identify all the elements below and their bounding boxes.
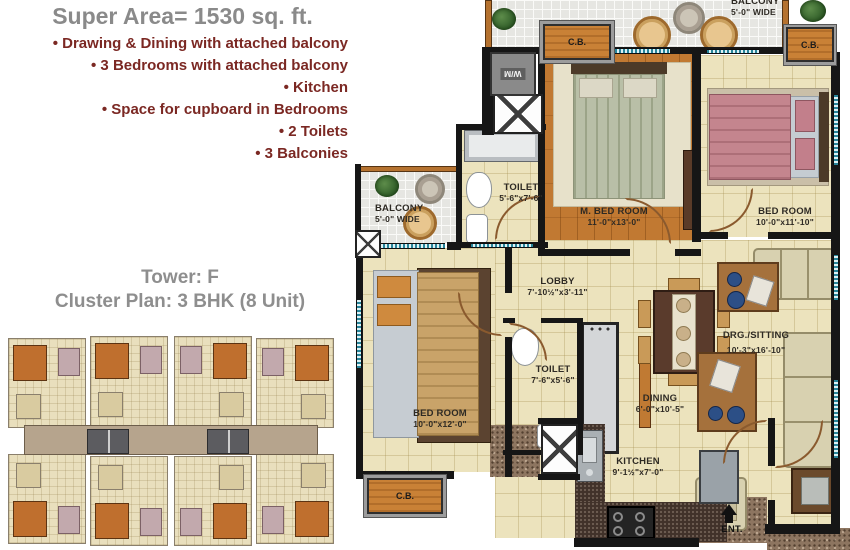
label-bedroom-left: BED ROOM 10'-0"x12'-0" <box>380 408 500 430</box>
wall-segment <box>768 418 775 466</box>
wash-basin <box>466 214 488 244</box>
cluster-unit <box>174 336 252 426</box>
wall-segment <box>538 52 545 255</box>
wall-segment <box>538 249 630 256</box>
feature-item: • 3 Balconies <box>0 143 348 165</box>
floorplan-brochure: Super Area= 1530 sq. ft. • Drawing & Din… <box>0 0 850 550</box>
round-table <box>415 174 445 204</box>
feature-item: • 2 Toilets <box>0 121 348 143</box>
wall-segment <box>692 52 701 242</box>
stove <box>607 506 655 539</box>
feature-list: • Drawing & Dining with attached balcony… <box>0 33 348 165</box>
wall-segment <box>485 0 492 52</box>
bedroom-right-bed <box>707 88 829 186</box>
coffee-table <box>697 352 757 432</box>
window <box>833 380 839 458</box>
shaft <box>493 94 543 134</box>
cluster-unit <box>256 338 334 428</box>
label-lobby: LOBBY 7'-10½"x3'-11" <box>505 276 610 298</box>
feature-item: • 3 Bedrooms with attached balcony <box>0 55 348 77</box>
label-drg-sitting: DRG./SITTING 10'-3"x16'-10" <box>686 330 826 356</box>
label-bedroom-right: BED ROOM 10'-0"x11'-10" <box>723 206 847 228</box>
plant-icon <box>492 8 516 30</box>
cupboard: C.B. <box>543 24 611 60</box>
unit-floor-plan: W/M C.B. C.B. C.B. BALCONY 5'-0" WIDE BA… <box>355 0 850 550</box>
cluster-unit <box>256 454 334 544</box>
label-master-bedroom: M. BED ROOM 11'-0"x13'-0" <box>550 206 678 228</box>
lift-block <box>87 429 129 454</box>
cluster-unit <box>8 454 86 544</box>
feature-item: • Kitchen <box>0 77 348 99</box>
coffee-table <box>717 262 779 312</box>
shaft <box>541 424 578 474</box>
feature-item: • Space for cupboard in Bedrooms <box>0 99 348 121</box>
label-balcony-left: BALCONY 5'-0" WIDE <box>375 203 445 225</box>
window <box>707 49 759 54</box>
wall-segment <box>538 474 580 480</box>
cluster-plan-thumbnail <box>8 336 334 546</box>
feature-item: • Drawing & Dining with attached balcony <box>0 33 348 55</box>
tower-caption: Tower: F Cluster Plan: 3 BHK (8 Unit) <box>20 266 340 314</box>
cluster-unit <box>8 338 86 428</box>
bathroom-counter <box>464 130 540 162</box>
washing-machine: W/M <box>490 52 536 96</box>
wall-segment <box>358 166 460 172</box>
window <box>356 300 362 368</box>
tower-line: Tower: F <box>20 266 340 290</box>
super-area-title: Super Area= 1530 sq. ft. <box>10 3 355 30</box>
wall-segment <box>768 500 775 530</box>
cluster-unit <box>90 456 168 546</box>
cluster-corridor <box>24 425 318 455</box>
master-bed <box>553 62 691 207</box>
wall-segment <box>447 242 461 250</box>
cluster-unit <box>90 336 168 426</box>
window <box>471 243 533 248</box>
label-balcony-top: BALCONY 5'-0" WIDE <box>731 0 793 18</box>
label-toilet-top: TOILET 5'-6"x7'-6" <box>481 182 561 204</box>
label-dining: DINING 6'-0"x10'-5" <box>610 393 710 415</box>
wall-segment <box>574 538 699 547</box>
wall-segment <box>456 124 462 248</box>
shaft <box>355 230 381 258</box>
cluster-plan-line: Cluster Plan: 3 BHK (8 Unit) <box>20 290 340 314</box>
cupboard: C.B. <box>786 27 834 62</box>
wall-segment <box>768 232 838 239</box>
window <box>833 255 839 300</box>
cupboard: C.B. <box>367 478 443 514</box>
wall-segment <box>700 232 728 239</box>
plant-icon <box>800 0 826 22</box>
wall-segment <box>765 524 840 534</box>
wall-segment <box>675 249 701 256</box>
lift-block <box>207 429 249 454</box>
plant-icon <box>375 175 399 197</box>
label-toilet-mid: TOILET 7'-6"x5'-6" <box>511 364 595 386</box>
label-entrance: ENT. <box>710 524 754 535</box>
entrance-arrow <box>721 504 737 524</box>
label-kitchen: KITCHEN 9'-1½"x7'-0" <box>578 456 698 478</box>
cluster-unit <box>174 456 252 546</box>
window <box>833 95 839 165</box>
washing-machine-label: W/M <box>500 68 525 80</box>
